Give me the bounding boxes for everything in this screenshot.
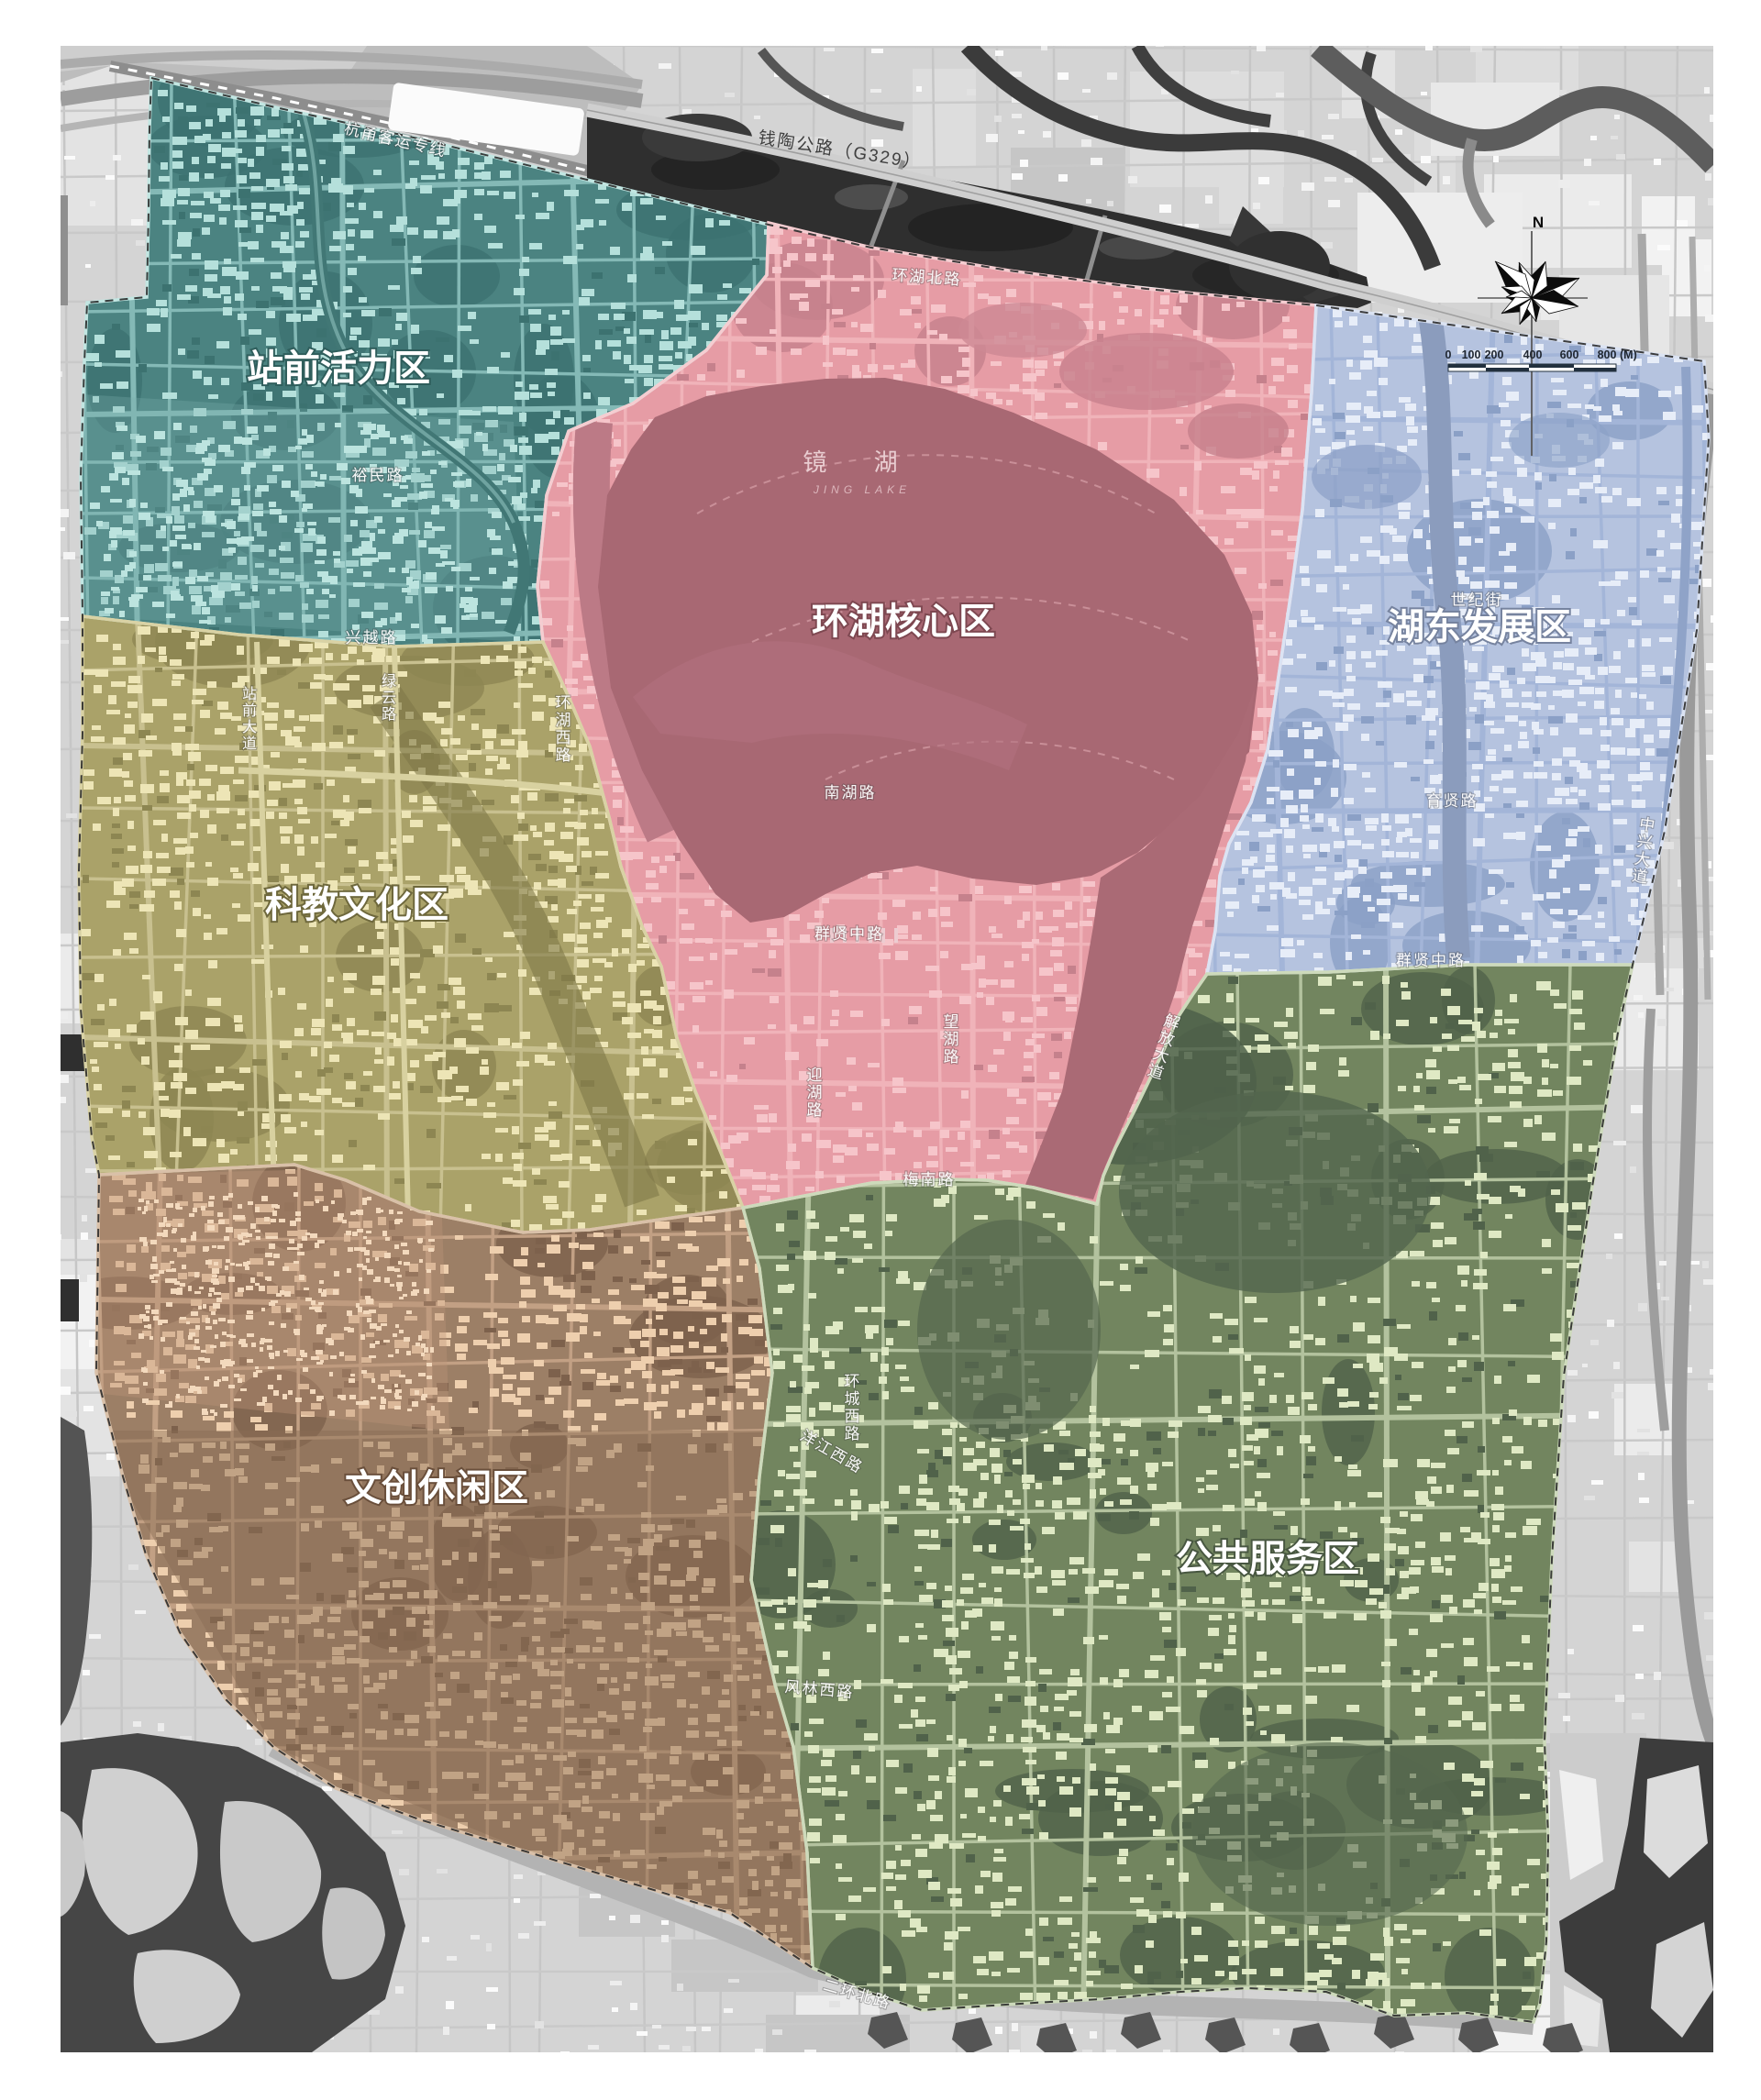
svg-text:JING LAKE: JING LAKE xyxy=(813,483,911,496)
svg-text:环城西路: 环城西路 xyxy=(845,1373,860,1442)
svg-text:望湖路: 望湖路 xyxy=(944,1013,959,1066)
svg-text:400: 400 xyxy=(1523,348,1543,361)
svg-text:世纪街: 世纪街 xyxy=(1451,591,1503,609)
svg-text:站前活力区: 站前活力区 xyxy=(247,348,430,389)
svg-text:600: 600 xyxy=(1560,348,1579,361)
svg-text:群贤中路: 群贤中路 xyxy=(1396,952,1466,969)
svg-text:公共服务区: 公共服务区 xyxy=(1176,1539,1359,1579)
svg-text:兴越路: 兴越路 xyxy=(346,629,398,647)
svg-text:环湖核心区: 环湖核心区 xyxy=(812,602,995,642)
svg-text:绿云路: 绿云路 xyxy=(382,673,396,723)
svg-text:群贤中路: 群贤中路 xyxy=(814,925,884,943)
svg-text:0: 0 xyxy=(1445,348,1452,361)
svg-text:N: N xyxy=(1533,214,1544,231)
svg-text:育贤路: 育贤路 xyxy=(1426,792,1479,810)
svg-text:科教文化区: 科教文化区 xyxy=(265,885,449,925)
svg-text:800: 800 xyxy=(1598,348,1617,361)
svg-text:镜 湖: 镜 湖 xyxy=(803,448,917,476)
svg-text:文创休闲区: 文创休闲区 xyxy=(345,1468,528,1509)
svg-text:100: 100 xyxy=(1462,348,1481,361)
svg-text:湖东发展区: 湖东发展区 xyxy=(1388,607,1571,647)
svg-text:南湖路: 南湖路 xyxy=(825,784,877,801)
svg-text:(M): (M) xyxy=(1620,348,1637,361)
svg-text:200: 200 xyxy=(1485,348,1504,361)
svg-text:裕民路: 裕民路 xyxy=(352,467,404,484)
svg-text:环湖西路: 环湖西路 xyxy=(556,694,571,764)
svg-text:梅南路: 梅南路 xyxy=(903,1171,956,1188)
svg-text:迎湖路: 迎湖路 xyxy=(807,1067,823,1119)
